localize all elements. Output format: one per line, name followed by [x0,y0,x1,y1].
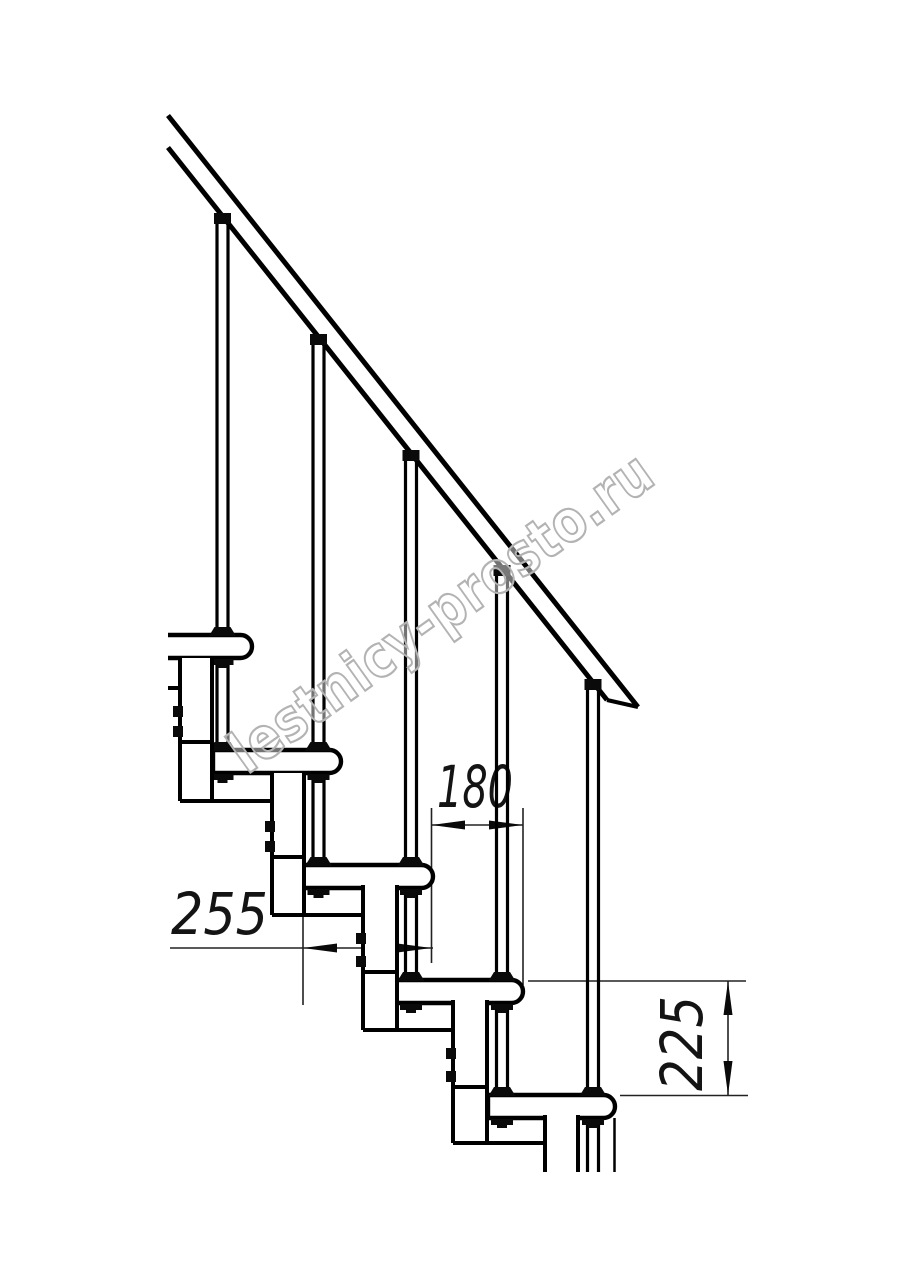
baluster-cap [214,213,231,224]
staircase-technical-drawing: 180 255 225 [0,0,914,1280]
baluster-cap [403,450,420,461]
post-nut [308,889,330,898]
post-foot [398,857,425,866]
post-nut [400,889,422,898]
bolt [265,821,275,832]
dimension-rise-225: 225 [528,981,748,1096]
baluster-cap [585,679,602,690]
post-foot [489,972,516,981]
bolt [265,841,275,852]
tread [302,865,433,888]
dimension-depth-label: 255 [171,880,268,948]
dimension-run-180: 180 [432,753,524,985]
post-foot [398,972,425,981]
post-foot [209,627,236,636]
post-nut [308,774,330,783]
bolt [173,706,183,717]
post-nut [400,1004,422,1013]
dimension-run-label: 180 [437,753,513,821]
dimension-rise-label: 225 [648,996,716,1091]
drawing-page: 180 255 225 [0,0,914,1280]
post-nut [582,1119,604,1128]
tread [488,1095,615,1118]
post-nut [491,1119,513,1128]
bolt [356,956,366,967]
post-foot [305,857,332,866]
post-nut [212,659,234,668]
baluster-cap [310,334,327,345]
bolt [446,1048,456,1059]
bolt [173,726,183,737]
post-foot [489,1087,516,1096]
post-nut [491,1004,513,1013]
bolt [356,933,366,944]
post-nut [212,774,234,783]
treads [168,635,615,1118]
post-foot [580,1087,607,1096]
bolt [446,1071,456,1082]
tread [396,980,523,1003]
tread [168,635,252,658]
